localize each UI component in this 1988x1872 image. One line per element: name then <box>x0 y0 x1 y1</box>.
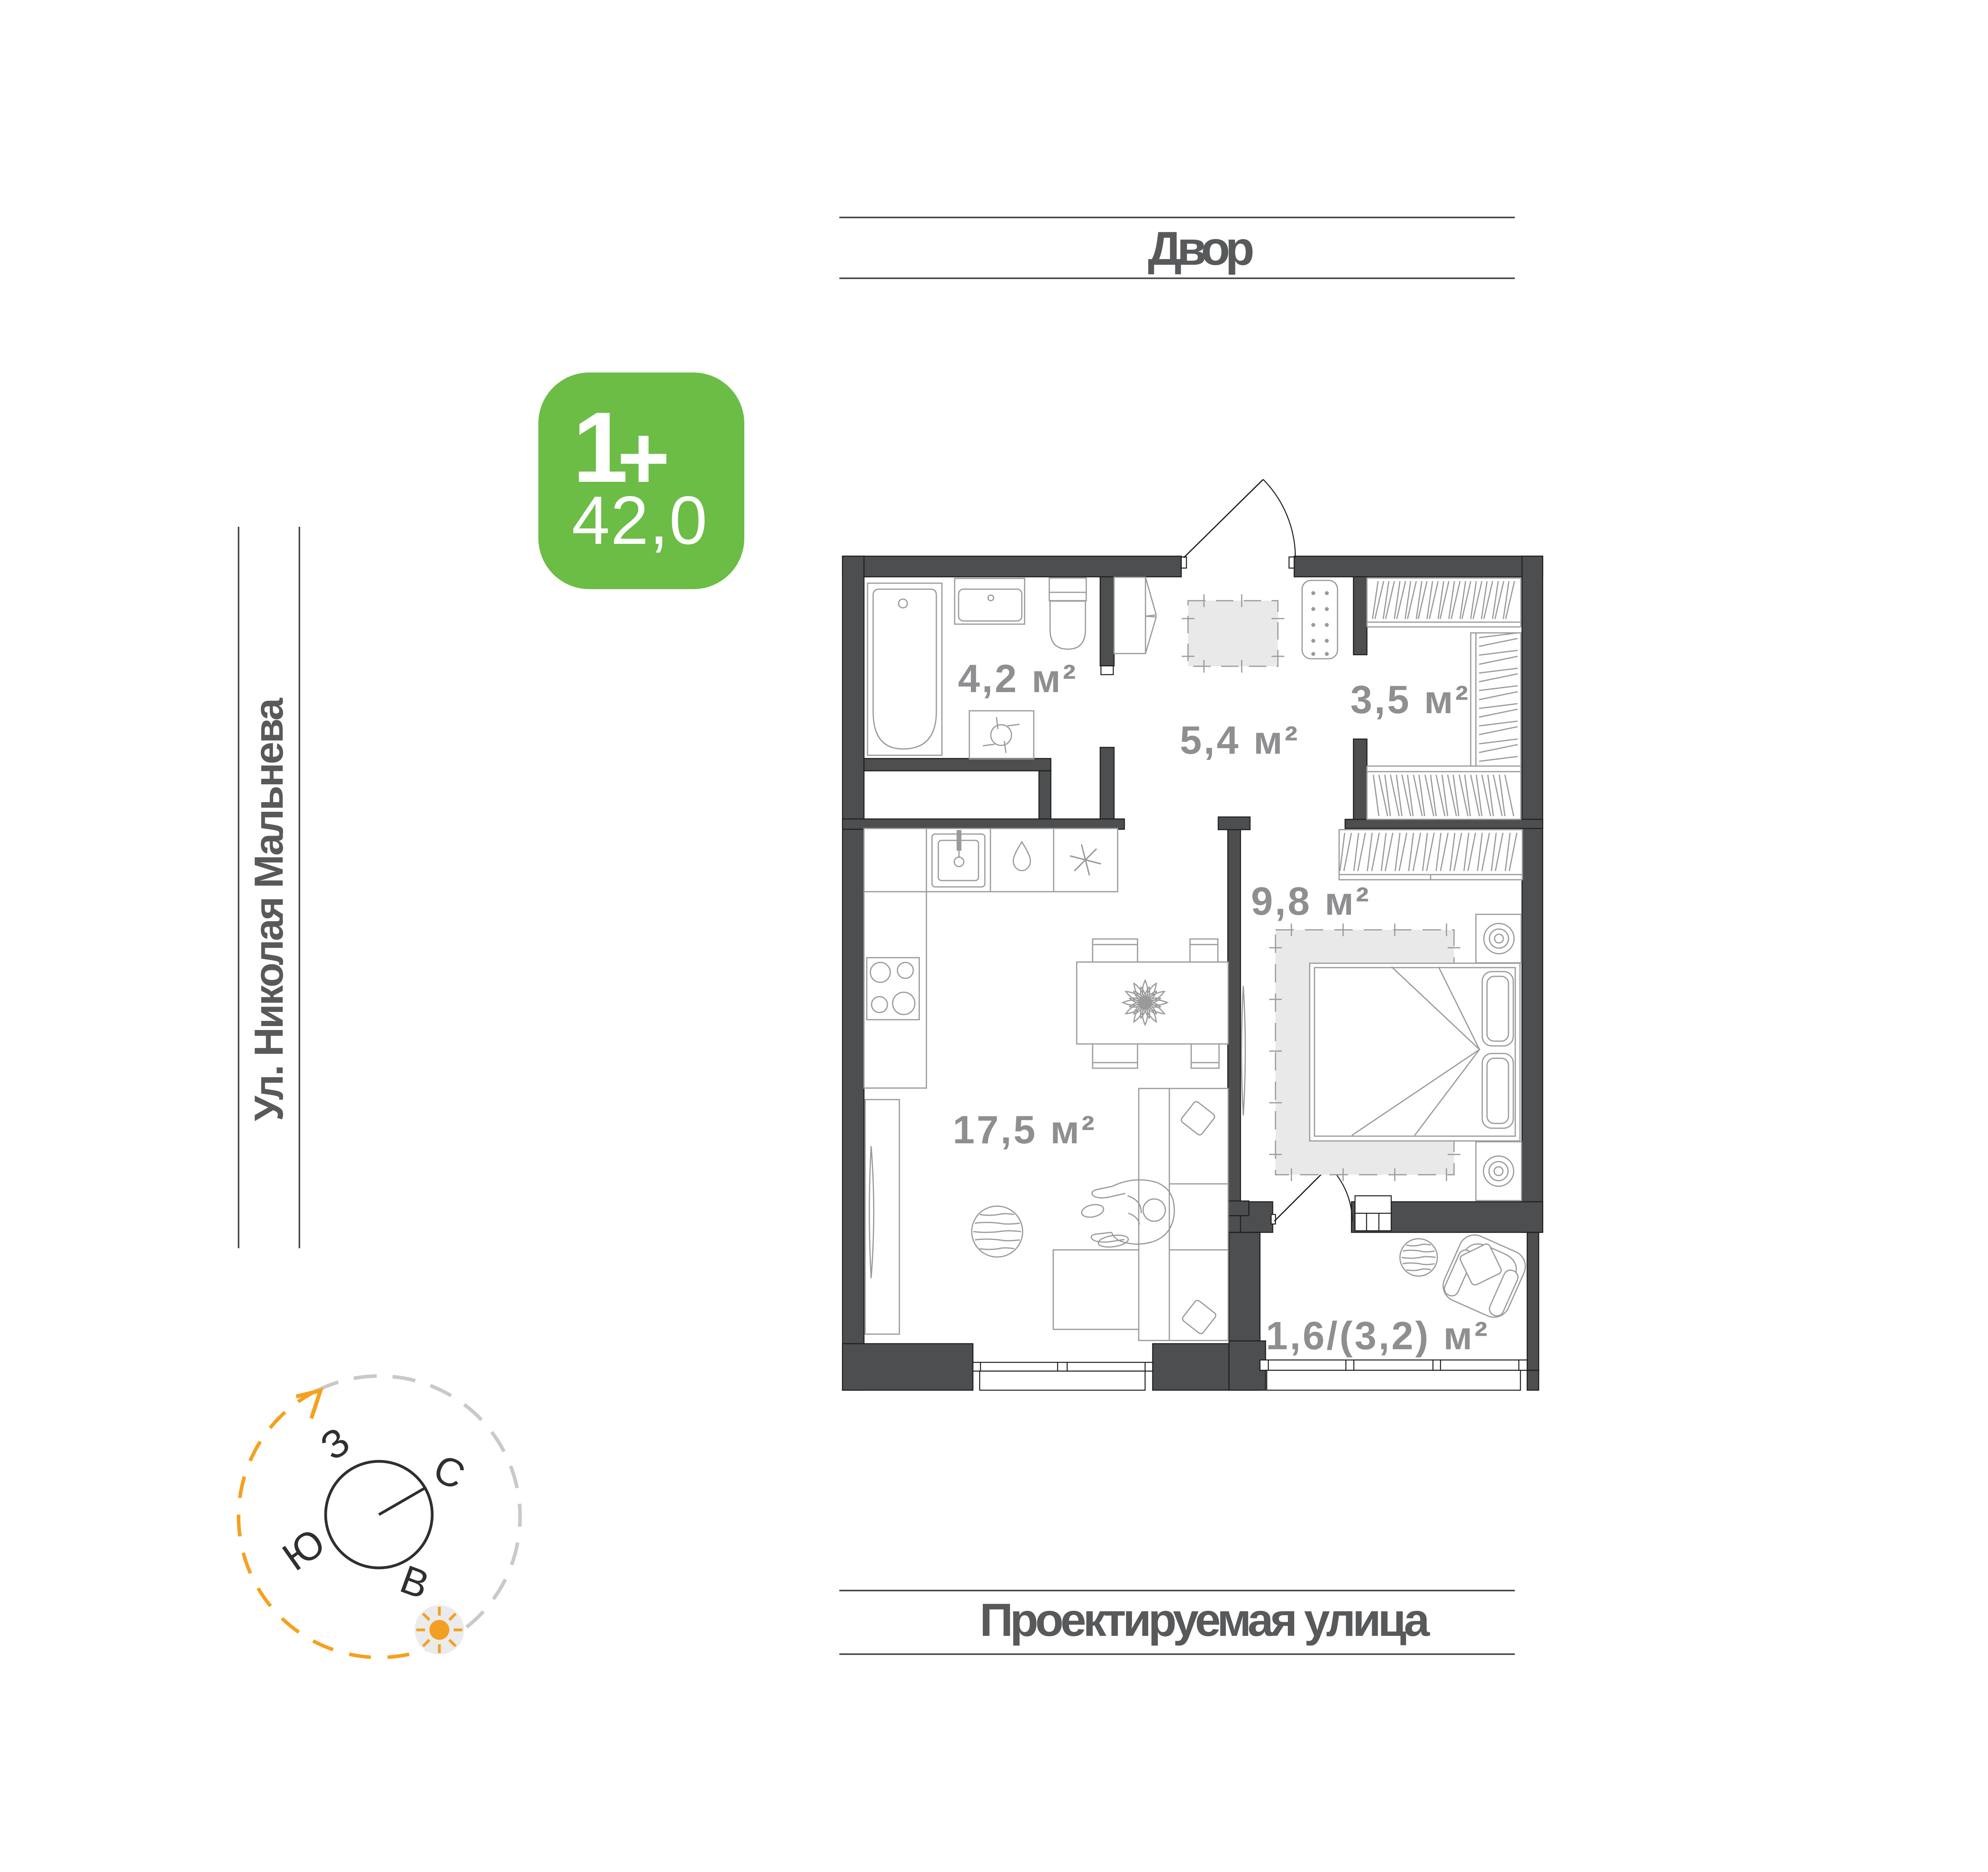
svg-text:1,6/(3,2) м²: 1,6/(3,2) м² <box>1266 1313 1489 1358</box>
svg-text:17,5 м²: 17,5 м² <box>953 1108 1096 1152</box>
svg-text:42,0: 42,0 <box>572 482 708 559</box>
svg-text:4,2 м²: 4,2 м² <box>958 656 1077 700</box>
svg-text:5,4 м²: 5,4 м² <box>1180 718 1299 762</box>
svg-text:Двор: Двор <box>1148 222 1253 275</box>
svg-text:3,5 м²: 3,5 м² <box>1350 677 1470 722</box>
svg-text:9,8 м²: 9,8 м² <box>1251 879 1371 923</box>
svg-text:Проектируемая улица: Проектируемая улица <box>980 1594 1430 1646</box>
svg-text:Ул. Николая Мальнева: Ул. Николая Мальнева <box>246 697 291 1121</box>
